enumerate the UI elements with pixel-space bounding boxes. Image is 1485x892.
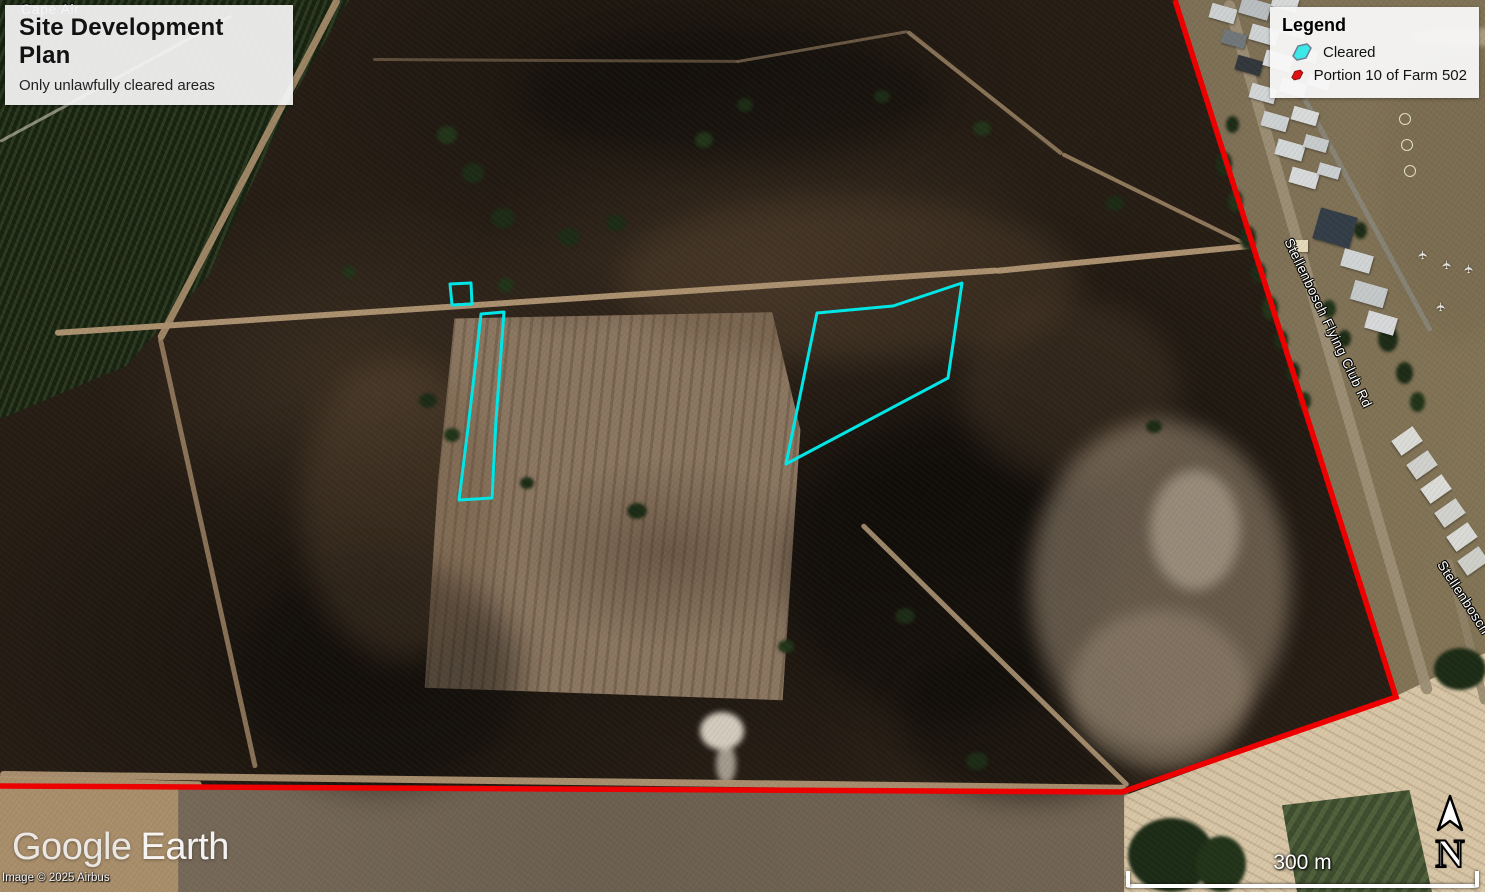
tree-icon (1216, 152, 1232, 176)
title-box: Site Development Plan Only unlawfully cl… (5, 5, 293, 105)
legend-item-label: Cleared (1323, 44, 1376, 61)
tree-icon (1146, 420, 1162, 433)
terrain-patch (1070, 610, 1250, 770)
aircraft-icon: ✈ (1440, 256, 1454, 270)
tree-icon (419, 393, 437, 408)
legend-heading: Legend (1282, 15, 1467, 36)
tree-icon (462, 163, 484, 183)
terrain-patch (1150, 470, 1240, 590)
google-earth-logo: GoogleEarth (12, 826, 229, 869)
scale-bar-label: 300 m (1127, 851, 1478, 875)
tree-icon (1226, 116, 1239, 133)
tree-icon (558, 228, 580, 246)
crop-rows-patch (1282, 790, 1432, 892)
tree-icon (437, 126, 457, 144)
helipad-ring (1399, 113, 1411, 125)
tree-icon (342, 266, 356, 278)
tree-icon (895, 608, 915, 624)
tree-icon (1298, 392, 1311, 410)
helipad-ring (1404, 165, 1416, 177)
terrain-patch (300, 360, 500, 660)
tree-icon (1396, 362, 1413, 384)
page-title: Site Development Plan (19, 14, 281, 70)
aircraft-icon: ✈ (1416, 246, 1430, 260)
tree-icon (498, 278, 514, 292)
logo-word-google: Google (12, 826, 132, 868)
aircraft-icon: ✈ (1434, 298, 1448, 312)
scale-bar-line (1127, 884, 1478, 888)
tree-icon (695, 132, 713, 148)
tree-icon (1262, 296, 1278, 320)
legend: Legend Cleared Portion 10 of Farm 502 (1270, 7, 1479, 98)
logo-word-earth: Earth (141, 826, 229, 868)
tree-icon (520, 477, 534, 489)
page-subtitle: Only unlawfully cleared areas (19, 77, 281, 94)
legend-item-portion10: Portion 10 of Farm 502 (1290, 65, 1467, 85)
aircraft-icon: ✈ (1462, 260, 1476, 274)
tree-icon (737, 98, 753, 112)
cleared-swatch-icon (1290, 42, 1314, 62)
tree-icon (627, 503, 647, 519)
tree-icon (1286, 362, 1300, 382)
legend-item-label: Portion 10 of Farm 502 (1314, 67, 1467, 84)
tree-icon (778, 640, 794, 653)
north-arrow-icon (1428, 794, 1472, 832)
tree-icon (491, 208, 515, 228)
tree-icon (1434, 648, 1485, 690)
tree-icon (966, 752, 988, 770)
imagery-copyright: Image © 2025 Airbus (2, 872, 110, 884)
road (158, 337, 258, 769)
satellite-basemap: ✈✈✈✈ (0, 0, 1485, 892)
tree-icon (1240, 226, 1256, 250)
scale-bar-tick-right (1475, 871, 1479, 887)
scale-bar-tick-left (1126, 871, 1130, 887)
tree-icon (444, 428, 460, 442)
legend-item-cleared: Cleared (1290, 42, 1467, 62)
tree-icon (606, 215, 626, 231)
tree-icon (874, 90, 890, 103)
tree-icon (1251, 262, 1266, 284)
terrain-patch (716, 744, 736, 784)
tree-icon (1354, 222, 1367, 239)
tree-icon (1228, 190, 1243, 212)
tree-icon (1410, 392, 1425, 412)
tree-icon (1274, 330, 1288, 350)
portion10-swatch-icon (1290, 65, 1305, 85)
google-earth-viewport[interactable]: ✈✈✈✈ Stellenbosch Flying Club Rd Stellen… (0, 0, 1485, 892)
helipad-ring (1401, 139, 1413, 151)
tree-icon (973, 121, 991, 136)
tree-icon (1106, 196, 1124, 211)
